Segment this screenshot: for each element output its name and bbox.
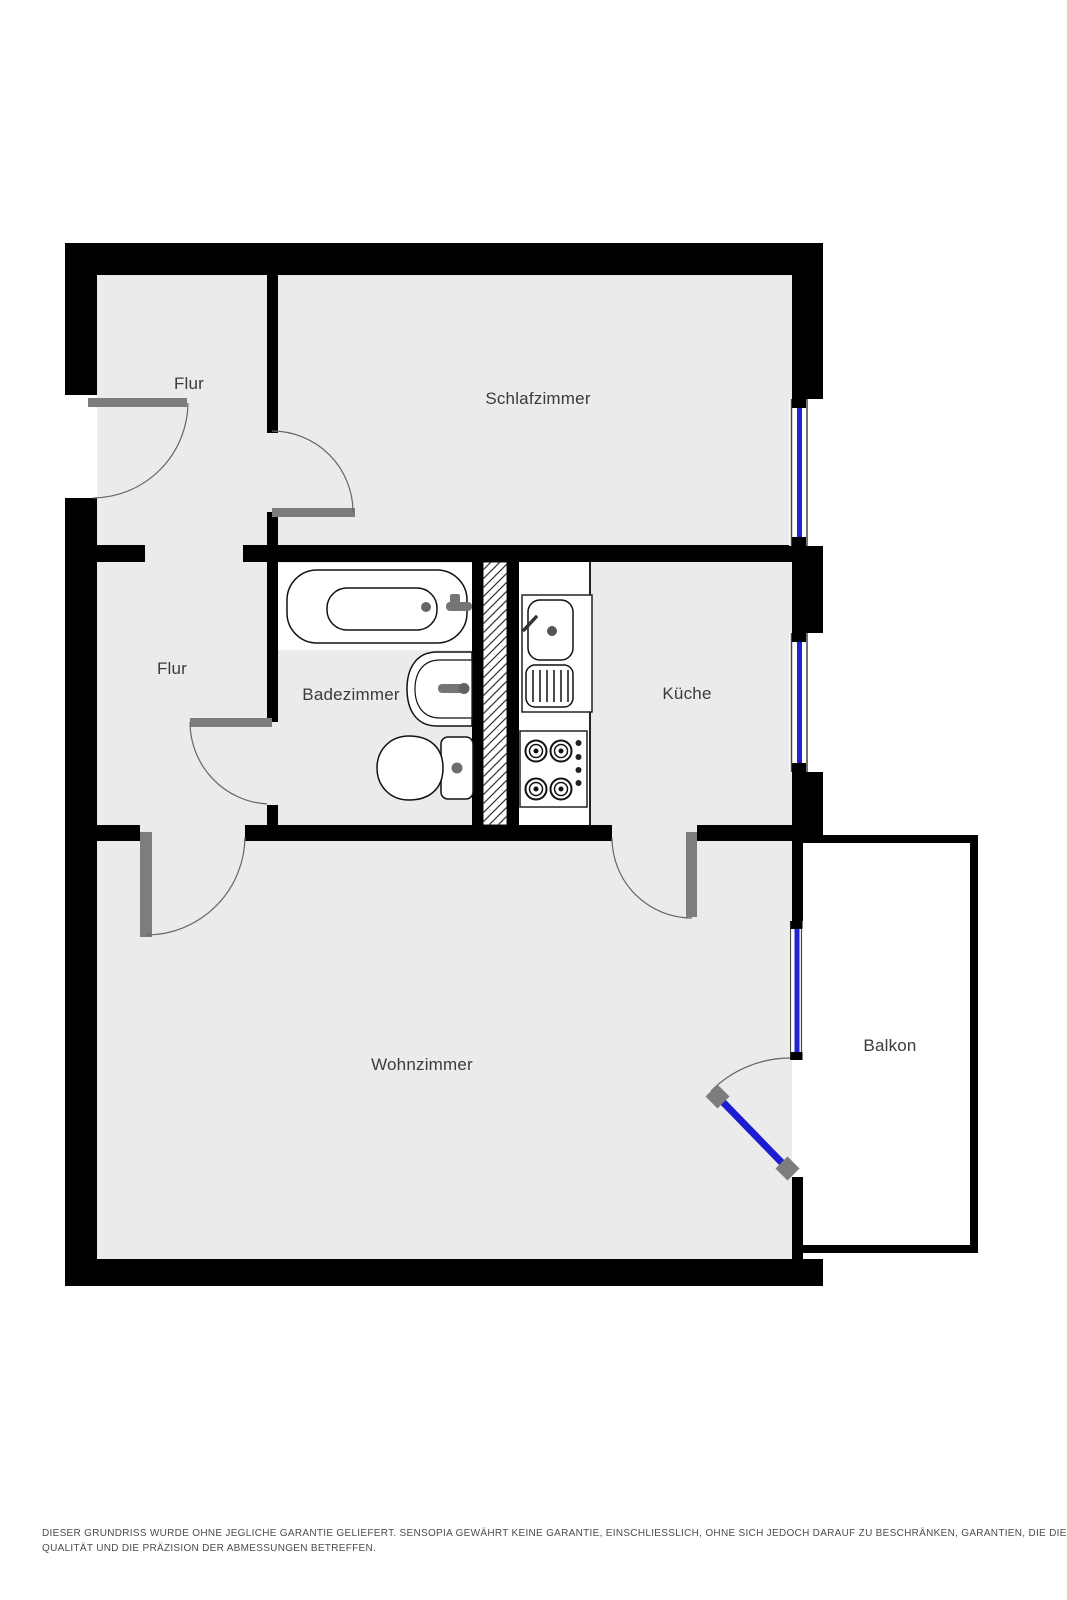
room-label-flur-upper: Flur xyxy=(174,374,204,394)
wall-right-4 xyxy=(792,841,803,921)
wall-livingroom-a xyxy=(97,825,140,841)
room-label-kueche: Küche xyxy=(662,684,711,704)
wall-top xyxy=(65,243,823,275)
ventilation-shaft xyxy=(483,562,507,825)
window-living-room xyxy=(789,921,803,1060)
wall-bottom xyxy=(65,1259,823,1286)
room-label-wohnzimmer: Wohnzimmer xyxy=(371,1055,473,1075)
toilet xyxy=(377,736,473,800)
stove xyxy=(520,731,587,807)
floorplan-drawing xyxy=(0,0,1067,1600)
wall-livingroom-c xyxy=(697,825,792,841)
room-label-badezimmer: Badezimmer xyxy=(302,685,399,705)
window-bedroom xyxy=(789,399,823,546)
wall-flur-schlaf xyxy=(267,275,278,433)
wall-right-2 xyxy=(792,546,823,633)
wall-left-lower xyxy=(65,498,97,1286)
wall-flur-bad-stub xyxy=(267,805,278,841)
floorplan-page: Flur Schlafzimmer Flur Badezimmer Küche … xyxy=(0,0,1067,1600)
wall-right-1 xyxy=(792,243,823,399)
wall-shaft-right xyxy=(507,562,519,825)
room-label-schlafzimmer: Schlafzimmer xyxy=(485,389,590,409)
window-kitchen xyxy=(789,633,823,772)
wall-right-5 xyxy=(792,1177,803,1259)
kitchen-sink-unit xyxy=(522,595,592,712)
wall-flur-bad xyxy=(267,512,278,722)
wall-mid-left-stub xyxy=(65,545,145,562)
disclaimer-text: DIESER GRUNDRISS WURDE OHNE JEGLICHE GAR… xyxy=(42,1526,1042,1556)
wall-mid xyxy=(243,545,792,562)
disclaimer-line-2: QUALITÄT UND DIE PRÄZISION DER ABMESSUNG… xyxy=(42,1541,1042,1556)
room-label-flur-lower: Flur xyxy=(157,659,187,679)
disclaimer-line-1: DIESER GRUNDRISS WURDE OHNE JEGLICHE GAR… xyxy=(42,1526,1042,1541)
wall-right-3 xyxy=(792,772,823,841)
washbasin xyxy=(407,652,472,726)
room-label-balkon: Balkon xyxy=(863,1036,916,1056)
bathtub xyxy=(287,570,472,643)
wall-livingroom-b xyxy=(245,825,612,841)
wall-left-upper xyxy=(65,243,97,395)
